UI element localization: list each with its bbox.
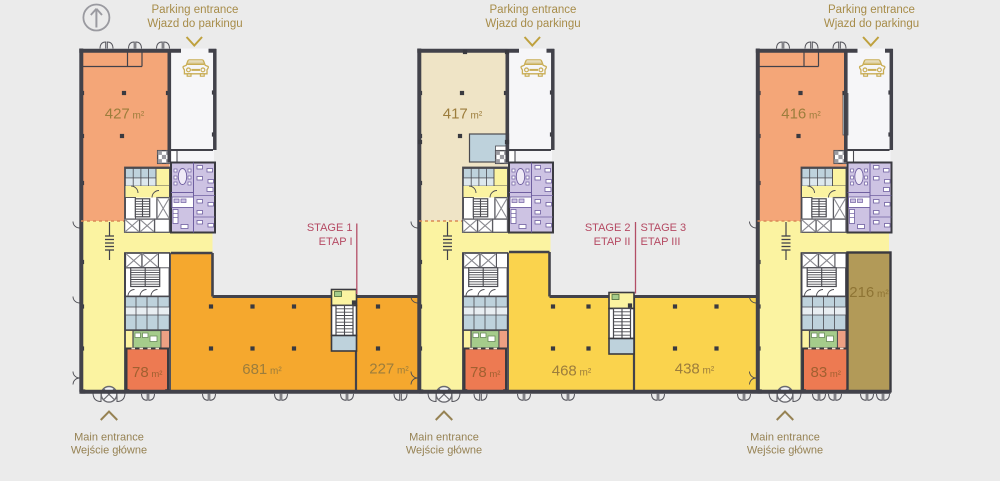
svg-text:Parking entrance: Parking entrance: [828, 4, 915, 16]
svg-text:ETAP III: ETAP III: [641, 236, 681, 248]
svg-text:STAGE 1: STAGE 1: [307, 222, 353, 234]
svg-text:Main entrance: Main entrance: [409, 432, 479, 444]
svg-text:STAGE 3: STAGE 3: [641, 222, 687, 234]
svg-text:Main entrance: Main entrance: [74, 432, 144, 444]
svg-text:Wejście główne: Wejście główne: [406, 445, 482, 457]
svg-text:ETAP I: ETAP I: [319, 236, 353, 248]
svg-text:Main entrance: Main entrance: [750, 432, 820, 444]
svg-text:Parking entrance: Parking entrance: [152, 4, 239, 16]
svg-text:Wjazd do parkingu: Wjazd do parkingu: [485, 18, 580, 30]
svg-text:Wejście główne: Wejście główne: [747, 445, 823, 457]
svg-text:STAGE 2: STAGE 2: [585, 222, 631, 234]
svg-text:Wjazd do parkingu: Wjazd do parkingu: [147, 18, 242, 30]
svg-text:Wjazd do parkingu: Wjazd do parkingu: [824, 18, 919, 30]
svg-text:Wejście główne: Wejście główne: [71, 445, 147, 457]
svg-text:Parking entrance: Parking entrance: [490, 4, 577, 16]
svg-text:ETAP II: ETAP II: [594, 236, 631, 248]
